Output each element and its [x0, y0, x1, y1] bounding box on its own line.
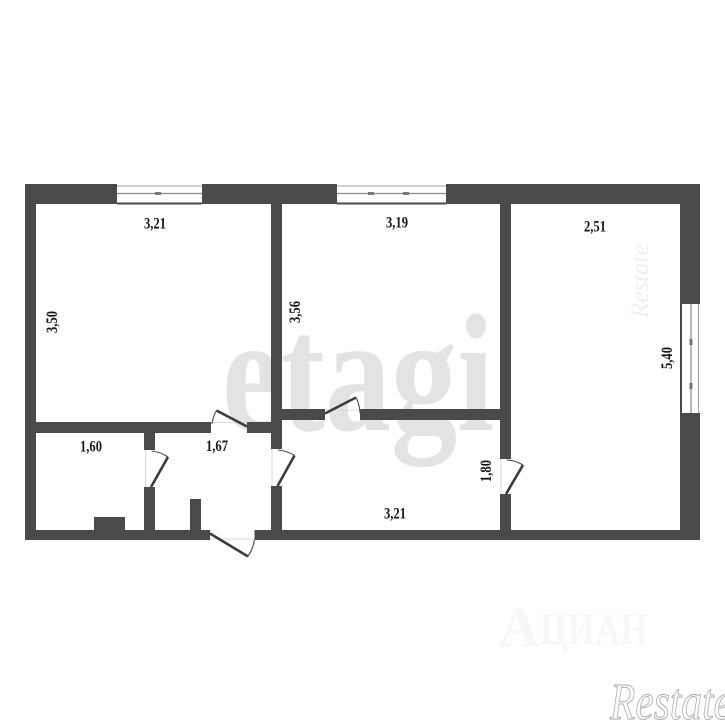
svg-text:Restate: Restate	[609, 674, 725, 725]
svg-text:3,50: 3,50	[44, 311, 61, 333]
svg-text:1,80: 1,80	[478, 460, 495, 482]
svg-text:Restate: Restate	[627, 244, 654, 319]
svg-text:2,51: 2,51	[584, 219, 606, 236]
svg-text:1,60: 1,60	[80, 439, 102, 456]
svg-text:1,67: 1,67	[206, 438, 228, 455]
svg-text:3,56: 3,56	[287, 301, 304, 323]
svg-text:5,40: 5,40	[659, 347, 676, 369]
svg-text:А: А	[498, 594, 540, 659]
svg-text:3,21: 3,21	[144, 216, 166, 233]
svg-text:3,19: 3,19	[386, 215, 408, 232]
svg-text:etagi: etagi	[222, 281, 494, 467]
svg-text:ЦИАН: ЦИАН	[540, 605, 648, 654]
svg-text:3,21: 3,21	[384, 506, 406, 523]
